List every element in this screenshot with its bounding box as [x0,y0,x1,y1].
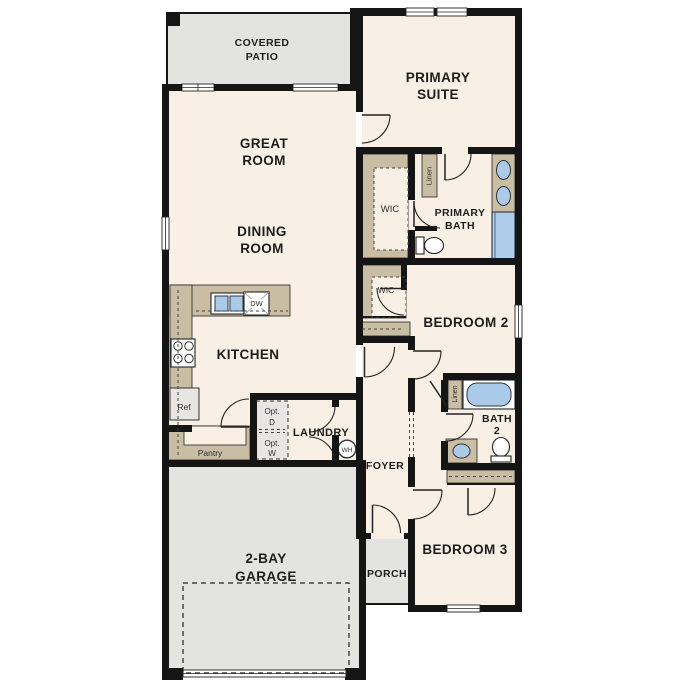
bath2-label: BATH [482,413,512,425]
wall-segment [356,147,442,154]
bedroom3-label: BEDROOM 3 [422,542,507,557]
foyer-label: FOYER [366,460,404,472]
optional-dryer-label: Opt. [264,407,279,416]
bedroom2-label: BEDROOM 2 [423,315,508,330]
optional-washer-label: Opt. [264,439,279,448]
wall-segment [408,230,415,258]
area-fills [166,12,515,673]
great-room-label: GREAT [240,136,289,151]
porch-label: PORCH [367,568,407,580]
primary-toilet-tank [416,237,424,254]
primary-suite-label: PRIMARY [406,70,471,85]
covered-patio-label: PATIO [246,51,279,63]
wall-segment [250,393,257,462]
primary-bath-sink [497,187,511,206]
bath2-toilet-tank [491,456,511,462]
pantry-label: Pantry [198,448,223,458]
wall-segment [356,258,522,265]
dishwasher-label: DW [250,299,263,308]
wall-segment [441,463,522,470]
linen-hall-label: Linen [452,385,459,402]
wall-segment [408,519,415,605]
wall-segment [162,668,183,680]
optional-washer-label: W [268,449,276,458]
patio-wall-thin [166,12,350,14]
wall-segment [332,393,339,407]
bedroom2-closet-shelf [360,322,410,336]
kitchen-sink-basin-right [230,296,243,311]
wall-segment [356,377,363,533]
wall-segment [441,380,448,412]
primary-bath-label: BATH [445,220,475,232]
front-door-opening [371,533,404,539]
bath2-tub-icon [467,383,511,406]
wall-segment [356,336,415,343]
kitchen-label: KITCHEN [217,347,280,362]
wall-segment [162,84,169,680]
linen-primary-label: Linen [425,167,434,185]
garage-label: 2-BAY [245,551,286,566]
great-room-label: ROOM [242,153,286,168]
wic-bedroom2-interior [372,277,406,318]
wall-segment [366,603,408,605]
bath2-label: 2 [494,425,500,437]
dining-room-label: DINING [237,224,287,239]
wic-bedroom2-label: WIC [378,285,395,295]
wall-segment [408,378,415,412]
wall-segment [356,84,363,112]
kitchen-sink-basin-left [215,296,228,311]
kitchen-counter-left [170,285,192,389]
wall-segment [408,343,415,350]
primary-toilet-icon [425,238,444,254]
wall-segment [162,425,192,432]
covered-patio-label: COVERED [235,37,290,49]
laundry-label: LAUNDRY [293,427,349,439]
wall-segment [250,393,360,400]
primary-bath-label: PRIMARY [435,207,486,219]
wall-segment [356,147,363,345]
wall-segment [443,373,522,380]
water-heater-label: WH [342,447,353,454]
wall-segment [332,435,339,462]
wall-segment [350,8,363,87]
wall-segment [447,483,515,485]
bath2-sink [453,444,470,458]
wall-segment [408,154,415,200]
garage-label: GARAGE [235,569,297,584]
primary-bath-sink [497,161,511,180]
optional-dryer-label: D [269,418,275,427]
primary-suite-label: SUITE [417,87,459,102]
pantry-interior [184,426,246,445]
bath2-toilet-icon [493,438,510,457]
wic-primary-label: WIC [381,204,400,215]
wall-segment [356,533,371,539]
patio-corner-post [166,12,180,26]
wall-segment [468,147,522,154]
dining-room-label: ROOM [240,241,284,256]
wall-segment [408,457,415,487]
floorplan-canvas: COVERED PATIO GREAT ROOM DINING ROOM PRI… [0,0,687,687]
refrigerator-label: Ref [177,402,191,412]
wall-segment [404,533,412,539]
